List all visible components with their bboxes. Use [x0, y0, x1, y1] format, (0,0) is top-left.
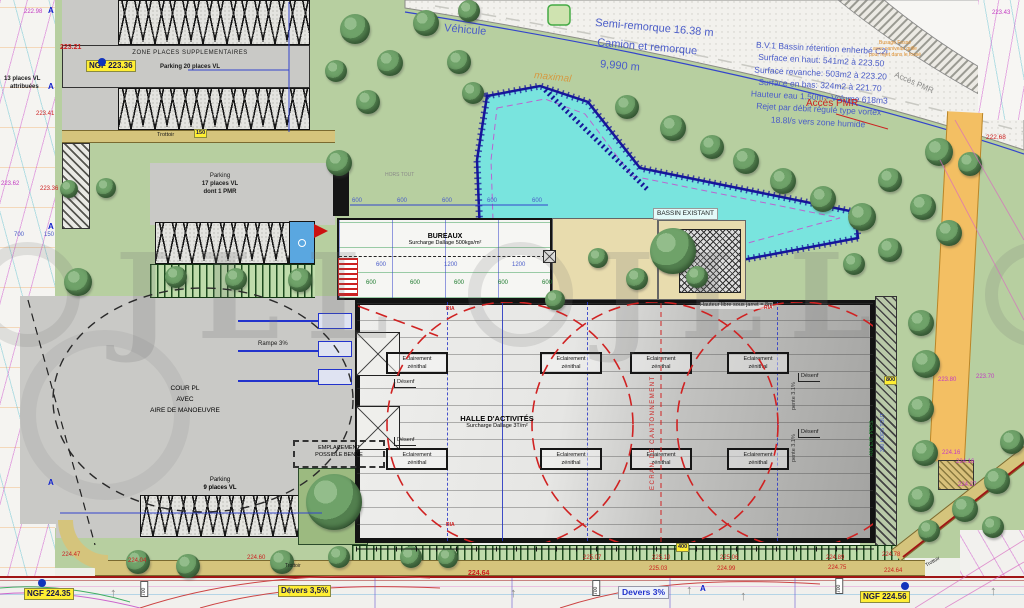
cour-line: AIRE DE MANOEUVRE — [120, 405, 250, 416]
level-mark: 224.47 — [62, 552, 80, 560]
tree — [770, 168, 796, 194]
level-223-70: 223.70 — [976, 374, 994, 382]
level-222-98: 222.98 — [24, 9, 42, 17]
level-mark: 225.03 — [649, 566, 667, 574]
boundary-red-line — [0, 576, 1024, 578]
tree — [925, 138, 953, 166]
tree — [843, 253, 865, 275]
parking17-line: Parking — [165, 172, 275, 180]
tree — [908, 396, 934, 422]
tree — [908, 310, 934, 336]
acces-pmr-label: Accès PMR — [806, 98, 858, 111]
pente-label: pente 3.1% — [791, 424, 798, 462]
dim-600: 600 — [487, 198, 497, 206]
skylight-l2: zénithal — [562, 364, 581, 370]
dim-400-ext-pers: 400 EXT. PERS. — [869, 398, 875, 456]
tree — [660, 115, 686, 141]
desenfumage-label: Désenf — [394, 379, 416, 388]
level-mark: 224.75 — [828, 565, 846, 573]
level-mark: 224.60 — [247, 555, 265, 563]
level-222-68: 222.68 — [986, 134, 1006, 142]
level-mark: 224.99 — [717, 566, 735, 574]
ngf-dot — [98, 58, 106, 66]
benne-label: EMPLACEMENT POSSIBLE BENNE — [298, 445, 380, 459]
dim-1200: 1200 — [444, 262, 457, 270]
watermark-text: JLL — [115, 238, 415, 356]
level-mark: 225.07 — [583, 555, 601, 563]
dim-400: 400 — [676, 543, 689, 552]
level-224-16b: 224.16 — [956, 459, 974, 467]
bureaux-subtitle: Surcharge Dallage 500kgs/m² — [385, 240, 505, 246]
flow-arrow-icon: ↑ — [990, 583, 997, 598]
level-mark: 224.64 — [468, 570, 489, 579]
ria-label: RIA — [764, 305, 773, 311]
tree — [982, 516, 1004, 538]
skylight-box: Eclairementzénithal — [540, 352, 602, 374]
tree — [810, 186, 836, 212]
tree — [615, 95, 639, 119]
tree — [462, 82, 484, 104]
level-223-21: 223.21 — [60, 44, 81, 53]
tree — [438, 548, 458, 568]
tree — [413, 10, 439, 36]
tree — [912, 350, 940, 378]
flow-arrow-icon: ↑ — [740, 588, 747, 603]
tree — [918, 520, 940, 542]
dim-700-left: 700 — [14, 232, 24, 240]
tree — [936, 220, 962, 246]
level-mark: 225.06 — [720, 555, 738, 563]
hall-grid-line — [587, 302, 588, 541]
trottoir-south-label: Trottoir — [285, 563, 301, 569]
dim-700-rot: 700 — [592, 580, 600, 596]
tree — [958, 152, 982, 176]
level-223-41: 223.41 — [36, 111, 54, 119]
dim-150: 150 — [194, 129, 207, 138]
dim-600: 600 — [366, 280, 376, 288]
level-mark: 224.89 — [826, 555, 844, 563]
lamp-post-icon: A — [48, 82, 54, 91]
loading-dock — [318, 369, 352, 385]
flow-arrow-icon: ↑ — [286, 582, 293, 597]
pente-label: pente 3.1% — [791, 372, 798, 410]
dim-300-hors-tout: 300 HORS TOUT — [880, 396, 886, 452]
parking9-stalls — [140, 495, 318, 537]
tree — [400, 546, 422, 568]
desenfumage-label: Désenf — [798, 429, 820, 438]
trottoir-top-label: Trottoir — [157, 132, 174, 139]
dim-600: 600 — [542, 280, 552, 288]
flow-arrow-icon: ↑ — [510, 585, 517, 600]
dim-600: 600 — [352, 198, 362, 206]
cour-line: AVEC — [120, 394, 250, 405]
desenfumage-label: Désenf — [394, 437, 416, 446]
tree — [912, 440, 938, 466]
tree — [878, 238, 902, 262]
bassin-existant-label: BASSIN EXISTANT — [653, 208, 718, 220]
dim-600: 600 — [532, 198, 542, 206]
dim-600: 600 — [454, 280, 464, 288]
tree — [447, 50, 471, 74]
tree — [225, 268, 247, 290]
dim-1200: 1200 — [512, 262, 525, 270]
dim-150-left: 150 — [44, 232, 54, 240]
tree — [356, 90, 380, 114]
desenfumage-label: Désenf — [798, 373, 820, 382]
bureaux-title: BUREAUX — [385, 233, 505, 240]
skylight-box: Eclairementzénithal — [540, 448, 602, 470]
tree — [908, 486, 934, 512]
tree — [60, 180, 78, 198]
skylight-l2: zénithal — [408, 460, 427, 466]
tree — [340, 14, 370, 44]
tree — [325, 60, 347, 82]
level-223-43: 223.43 — [992, 10, 1010, 18]
tree — [910, 194, 936, 220]
benne-line: POSSIBLE BENNE — [298, 452, 380, 459]
hauteur-libre-label: Hauteur libre sous jarret = 8m — [700, 302, 773, 309]
skylight-box: Eclairementzénithal — [630, 448, 692, 470]
skylight-l1: Eclairement — [556, 452, 585, 458]
tree — [878, 168, 902, 192]
skylight-l1: Eclairement — [743, 452, 772, 458]
parking20-stalls-row2 — [118, 88, 310, 130]
tree — [165, 266, 187, 288]
boundary-red-line2 — [0, 580, 1024, 581]
tree — [626, 268, 648, 290]
tree — [96, 178, 116, 198]
tree — [377, 50, 403, 76]
skylight-l2: zénithal — [562, 460, 581, 466]
parking9-line: 9 places VL — [170, 484, 270, 492]
parking17-line: dont 1 PMR — [165, 188, 275, 196]
skylight-l1: Eclairement — [402, 452, 431, 458]
level-223-80: 223.80 — [938, 377, 956, 385]
tree — [1000, 430, 1024, 454]
tree — [176, 554, 200, 578]
level-223-36b: 223.36 — [40, 186, 58, 194]
dim-700-rot: 700 — [835, 578, 843, 594]
lamp-post-icon: A — [48, 6, 54, 15]
benne-line: EMPLACEMENT — [298, 445, 380, 452]
dim-600: 600 — [376, 262, 386, 270]
hors-tout-label: HORS TOUT — [385, 172, 414, 178]
parking17-label: Parking 17 places VL dont 1 PMR — [165, 172, 275, 196]
tree — [984, 468, 1010, 494]
dim-600: 600 — [442, 198, 452, 206]
skylight-box: Eclairementzénithal — [386, 448, 448, 470]
attrib-label-1: 13 places VL — [4, 76, 40, 84]
ngf-dot — [38, 579, 46, 587]
tree — [64, 268, 92, 296]
ngf-223-36: NGF 223.36 — [86, 60, 136, 72]
hall-label: HALLE D'ACTIVITÉS Surcharge Dallage 3T/m… — [437, 414, 557, 429]
level-224-16a: 224.16 — [942, 450, 960, 458]
lamp-post-icon: A — [700, 584, 706, 593]
busage-note: Busage Fossé avec caniveau grille pour r… — [858, 40, 932, 58]
gate-bar — [333, 170, 349, 216]
level-mark: 224.04 — [128, 558, 146, 566]
level-mark: 224.64 — [884, 568, 902, 576]
tree — [650, 228, 696, 274]
tree — [288, 268, 312, 292]
tree — [306, 474, 362, 530]
flow-arrow-icon: ↑ — [110, 585, 117, 600]
dim-600: 600 — [410, 280, 420, 288]
cour-pl-label: COUR PL AVEC AIRE DE MANOEUVRE — [120, 383, 250, 416]
tree — [270, 550, 294, 574]
rampe-label: Rampe 3% — [258, 341, 288, 349]
parking17-line: 17 places VL — [165, 180, 275, 188]
skylight-box: Eclairementzénithal — [727, 448, 789, 470]
busage-line: pour rejet dans le fossé — [858, 52, 932, 58]
right-cad-margin-top — [978, 0, 1024, 120]
dim-800: 800 — [884, 376, 897, 385]
flow-arrow-icon: ↑ — [686, 582, 693, 597]
site-plan: JLL JLL ZONE PLACES SUPPLEMENTAIRES Park… — [0, 0, 1024, 608]
parking20-label: Parking 20 places VL — [130, 64, 250, 72]
hall-subtitle: Surcharge Dallage 3T/m² — [437, 423, 557, 429]
level-mark: 224.78 — [882, 552, 900, 560]
ria-label: RIA — [446, 522, 455, 528]
ngf-224-56: NGF 224.56 — [860, 591, 910, 603]
tree — [328, 546, 350, 568]
skylight-l2: zénithal — [749, 460, 768, 466]
tree — [733, 148, 759, 174]
tree — [700, 135, 724, 159]
lamp-post-icon: A — [48, 478, 54, 487]
ngf-224-35: NGF 224.35 — [24, 588, 74, 600]
dim-600: 600 — [498, 280, 508, 288]
tree — [458, 0, 480, 22]
ecran-cantonnement-label: ECRAN DE CANTONNEMENT — [650, 345, 658, 490]
tree — [545, 290, 565, 310]
devers-3-label: Devers 3% — [618, 586, 669, 599]
dim-700-rot: 700 — [140, 581, 148, 597]
level-mark: 225.10 — [652, 555, 670, 563]
zone-supplementaires-label: ZONE PLACES SUPPLEMENTAIRES — [105, 50, 275, 58]
tree — [952, 496, 978, 522]
parking9-line: Parking — [170, 476, 270, 484]
trottoir-south — [95, 560, 925, 576]
level-223-62: 223.62 — [1, 181, 19, 189]
tree — [848, 203, 876, 231]
tree — [588, 248, 608, 268]
cour-line: COUR PL — [120, 383, 250, 394]
attrib-label-2: attribuées — [10, 84, 39, 92]
dim-600: 600 — [397, 198, 407, 206]
ngf-dot — [901, 582, 909, 590]
skylight-l1: Eclairement — [556, 356, 585, 362]
level-224-27: 224.27 — [958, 482, 976, 490]
parking9-label: Parking 9 places VL — [170, 476, 270, 492]
tree — [326, 150, 352, 176]
hall-title: HALLE D'ACTIVITÉS — [437, 414, 557, 423]
bureaux-label: BUREAUX Surcharge Dallage 500kgs/m² — [385, 233, 505, 246]
tree — [686, 266, 708, 288]
parking20-stalls-row1 — [118, 0, 310, 45]
ria-label: RIA — [446, 306, 455, 312]
lamp-post-icon: A — [48, 222, 54, 231]
